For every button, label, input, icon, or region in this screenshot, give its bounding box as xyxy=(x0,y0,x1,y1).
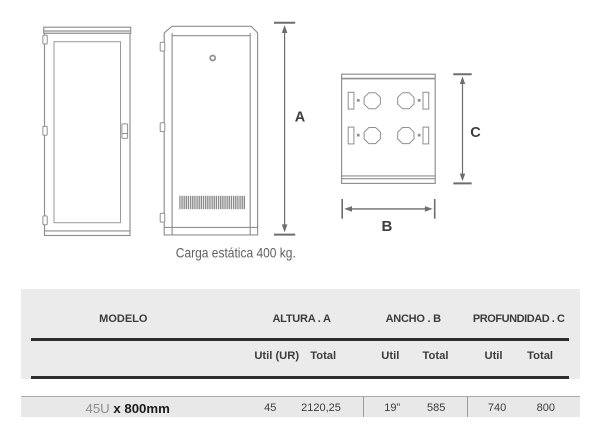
svg-text:C: C xyxy=(470,125,481,141)
svg-text:A: A xyxy=(295,110,306,126)
svg-text:B: B xyxy=(382,218,393,235)
svg-text:Carga estática 400 kg.: Carga estática 400 kg. xyxy=(176,245,296,261)
